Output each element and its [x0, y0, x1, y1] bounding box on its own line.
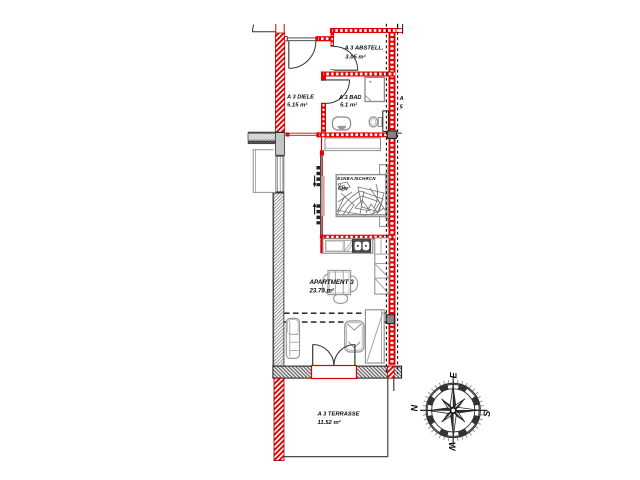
svg-text:APARTMENT 3: APARTMENT 3 [309, 279, 355, 286]
svg-text:A 3 ABSTELL.: A 3 ABSTELL. [344, 45, 385, 51]
svg-text:S: S [482, 411, 492, 417]
svg-text:E1NBAJ5CHRCN: E1NBAJ5CHRCN [337, 176, 376, 181]
svg-text:3.05 m²: 3.05 m² [345, 54, 366, 61]
svg-text:5.1 m²: 5.1 m² [340, 101, 358, 108]
svg-text:A 3 DIELE: A 3 DIELE [286, 95, 314, 101]
svg-text:5.15 m²: 5.15 m² [287, 101, 308, 108]
svg-text:E: E [449, 371, 459, 378]
svg-text:1.Mq: 1.Mq [338, 185, 348, 190]
svg-text:A: A [399, 96, 404, 102]
svg-text:A 3 TERRASSE: A 3 TERRASSE [317, 411, 361, 417]
svg-text:11.52 m²: 11.52 m² [318, 419, 342, 426]
svg-text:A 3 BAD: A 3 BAD [338, 95, 362, 101]
svg-text:23.70 m²: 23.70 m² [309, 287, 335, 294]
svg-text:W: W [447, 442, 457, 452]
svg-text:N: N [410, 404, 420, 411]
